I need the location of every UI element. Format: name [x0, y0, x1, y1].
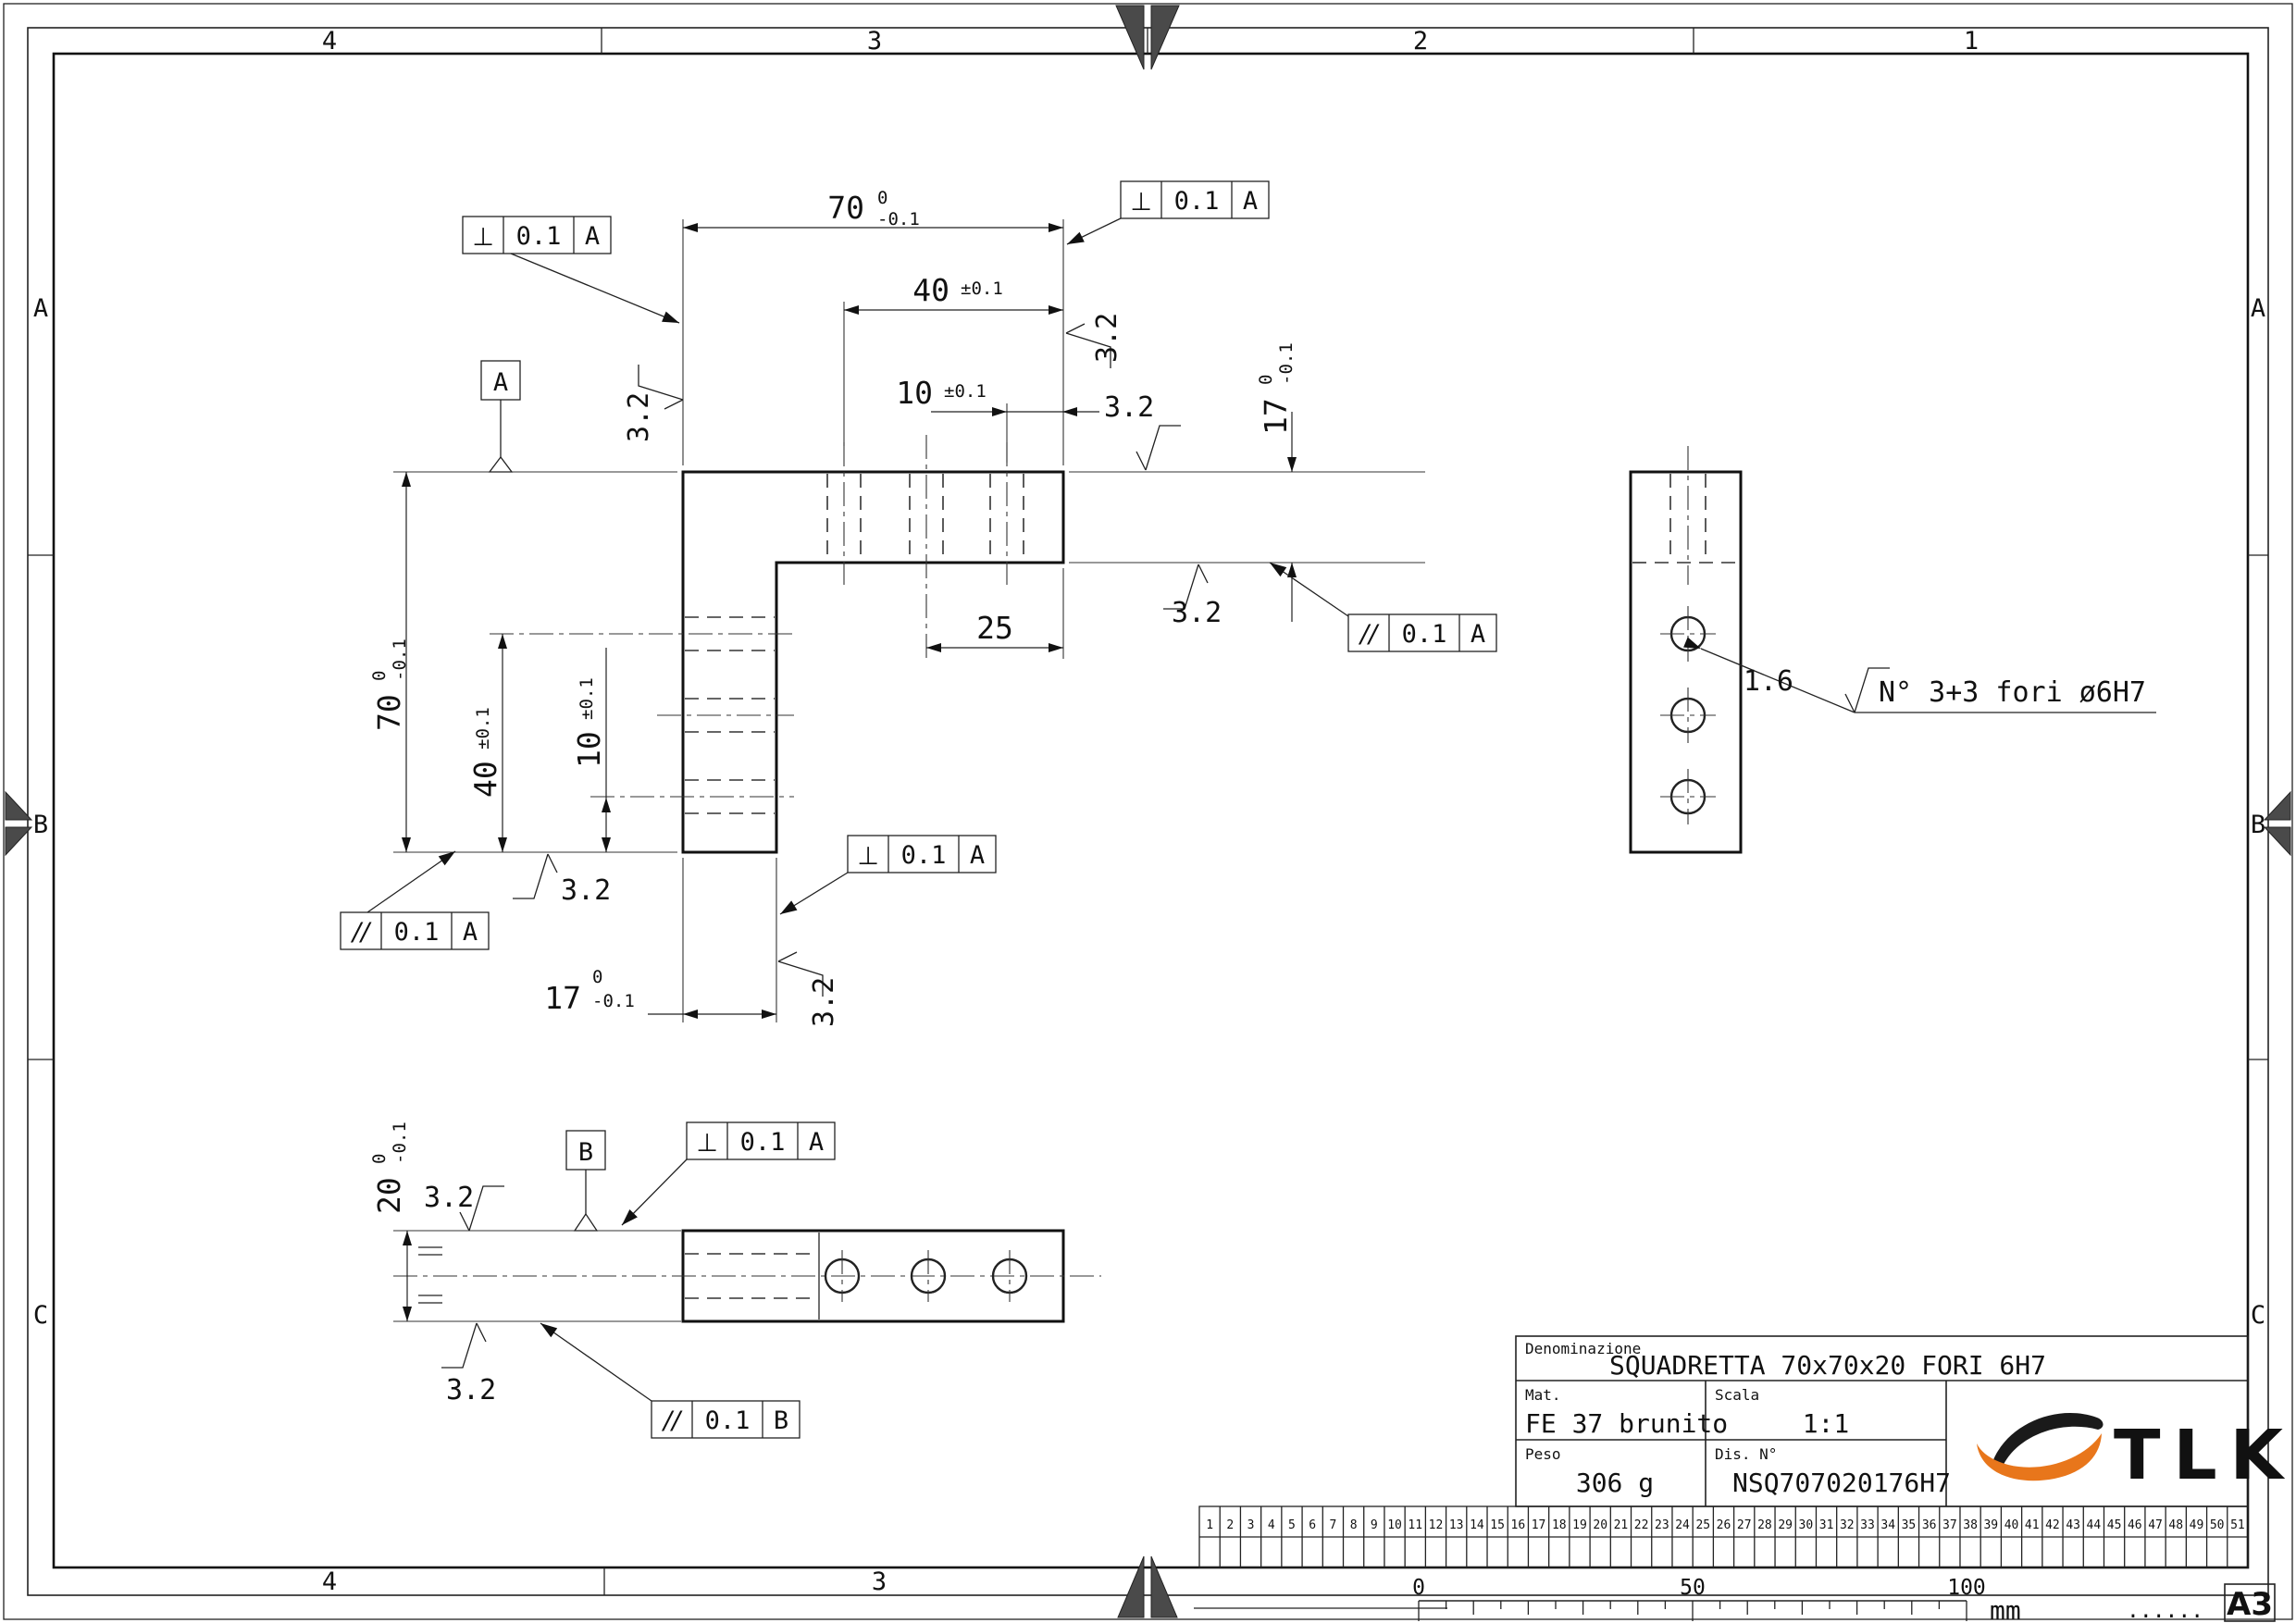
strip-cell-number: 2 [1226, 1518, 1234, 1532]
gdt-datum: A [970, 841, 985, 870]
strip-cell-number: 11 [1408, 1518, 1422, 1532]
strip-cell-number: 10 [1387, 1518, 1402, 1532]
strip-cell-number: 6 [1309, 1518, 1316, 1532]
gdt-datum: A [1243, 187, 1258, 216]
strip-cell-number: 48 [2168, 1518, 2183, 1532]
dim-70-left-upper: 0 [369, 671, 390, 681]
zone-right-b: B [2251, 811, 2265, 839]
strip-cell-number: 17 [1532, 1518, 1546, 1532]
gdt-perp-center: ⊥ 0.1 A [777, 836, 996, 919]
parallel-icon: // [1359, 620, 1380, 649]
dim-40-top-value: 40 [912, 272, 949, 308]
peso-value: 306 g [1576, 1468, 1654, 1498]
dim-17-bottom: 17 0 -0.1 [544, 967, 776, 1019]
strip-cell-number: 14 [1470, 1518, 1484, 1532]
logo-text: TLK [2114, 1416, 2296, 1495]
strip-cell-number: 18 [1552, 1518, 1567, 1532]
gdt-perp-bottom-view: ⊥ 0.1 A [618, 1122, 835, 1229]
hole-note: 1.6 N° 3+3 fori ø6H7 [1683, 638, 2156, 712]
gdt-perp-top-left: ⊥ 0.1 A [463, 217, 681, 328]
side-view-outline [1631, 472, 1741, 852]
dim-20-upper: 0 [369, 1154, 390, 1164]
finish-mark: 3.2 [808, 977, 840, 1027]
strip-cell-number: 50 [2210, 1518, 2225, 1532]
ruler-dots: ...... [2127, 1599, 2203, 1623]
dim-70-left: 70 0 -0.1 [369, 472, 411, 852]
datum-b-label: B [578, 1138, 593, 1167]
trim-mark-bottom [1118, 1556, 1177, 1617]
strip-cell-number: 15 [1490, 1518, 1505, 1532]
zone-top-2: 2 [1413, 27, 1428, 56]
a3-drawing-sheet: 4 3 2 1 4 3 A B C A B C [0, 0, 2296, 1623]
strip-cell-number: 25 [1695, 1518, 1710, 1532]
zone-right-c: C [2251, 1301, 2265, 1330]
ruler-100: 100 [1947, 1576, 1986, 1600]
strip-cell-number: 47 [2148, 1518, 2163, 1532]
finish-mark: 3.2 [424, 1182, 474, 1214]
finish-mark: 3.2 [1091, 313, 1123, 363]
dim-40-left: 40 ±0.1 [467, 634, 507, 852]
dim-70-top-upper: 0 [877, 188, 887, 208]
strip-cell-number: 34 [1880, 1518, 1895, 1532]
zone-bottom-3: 3 [872, 1567, 887, 1596]
gdt-par-mid: // 0.1 A [1267, 558, 1496, 651]
finish-mark: 3.2 [446, 1374, 496, 1406]
dim-10-top-tol: ±0.1 [944, 381, 987, 402]
dim-70-top-value: 70 [827, 190, 864, 226]
strip-cell-number: 33 [1860, 1518, 1875, 1532]
scala-value: 1:1 [1803, 1408, 1850, 1439]
datum-a-flag: A [481, 361, 520, 472]
mat-label: Mat. [1525, 1386, 1561, 1404]
strip-cell-number: 40 [2004, 1518, 2019, 1532]
gdt-datum: A [463, 918, 478, 947]
strip-cell-number: 42 [2045, 1518, 2060, 1532]
strip-cell-number: 19 [1572, 1518, 1587, 1532]
zone-left-c: C [33, 1301, 48, 1330]
surface-finish-marks: 3.2 3.2 3.2 3.2 3.2 3.2 3.2 3.2 [424, 313, 1222, 1406]
dim-10-left: 10 ±0.1 [571, 648, 611, 852]
strip-cell-number: 44 [2087, 1518, 2102, 1532]
strip-cell-number: 23 [1655, 1518, 1669, 1532]
perp-icon: ⊥ [1130, 188, 1152, 217]
finish-mark: 3.2 [1104, 391, 1154, 424]
finish-1_6-holes: 1.6 [1744, 665, 1793, 698]
gdt-datum: A [809, 1128, 824, 1157]
strip-cell-number: 35 [1902, 1518, 1917, 1532]
finish-mark: 3.2 [1172, 597, 1222, 629]
gdt-datum: B [774, 1406, 788, 1435]
strip-cell-number: 49 [2190, 1518, 2204, 1532]
strip-cell-number: 46 [2128, 1518, 2142, 1532]
finish-mark: 3.2 [623, 392, 655, 442]
gdt-frames: ⊥ 0.1 A ⊥ 0.1 A // 0.1 A [341, 181, 1496, 1438]
dim-17-bottom-value: 17 [544, 980, 581, 1016]
strip-cell-number: 32 [1840, 1518, 1855, 1532]
gdt-datum: A [585, 222, 600, 251]
dim-20-lower: -0.1 [390, 1121, 410, 1164]
dis-number-value: NSQ707020176H7 [1732, 1468, 1951, 1498]
strip-cell-number: 5 [1288, 1518, 1296, 1532]
dim-17-right-upper: 0 [1256, 375, 1276, 385]
strip-cell-number: 39 [1983, 1518, 1998, 1532]
title-block: Denominazione SQUADRETTA 70x70x20 FORI 6… [1516, 1336, 2296, 1506]
dim-70-top: 70 0 -0.1 [683, 188, 1063, 232]
gdt-par-bottom-left: // 0.1 A [341, 847, 489, 949]
zone-top-3: 3 [867, 27, 882, 56]
bottom-margin: 0 50 100 mm ...... A3 [1194, 1576, 2275, 1623]
finish-mark: 3.2 [561, 874, 611, 907]
strip-cell-number: 9 [1371, 1518, 1378, 1532]
datum-b-flag: B [566, 1131, 605, 1231]
strip-cell-number: 51 [2230, 1518, 2245, 1532]
ruler-unit: mm [1990, 1595, 2021, 1623]
datum-a-label: A [493, 368, 508, 397]
front-view-outline [683, 472, 1063, 852]
strip-cell-number: 1 [1206, 1518, 1213, 1532]
strip-cell-number: 13 [1449, 1518, 1464, 1532]
strip-cell-number: 37 [1942, 1518, 1957, 1532]
strip-cell-number: 30 [1799, 1518, 1814, 1532]
mm-ruler [1419, 1601, 1967, 1621]
strip-cell-number: 31 [1819, 1518, 1834, 1532]
dim-25: 25 [926, 610, 1063, 652]
parallel-icon: // [662, 1406, 683, 1435]
dim-17-bottom-lower: -0.1 [592, 991, 635, 1011]
zone-top-4: 4 [322, 27, 337, 56]
dim-70-left-value: 70 [371, 694, 407, 731]
strip-cell-number: 36 [1922, 1518, 1937, 1532]
ruler-50: 50 [1680, 1576, 1706, 1600]
strip-cell-number: 41 [2025, 1518, 2040, 1532]
dim-40-top-tol: ±0.1 [961, 279, 1003, 299]
extension-lines-front [393, 219, 1425, 1022]
strip-cell-number: 21 [1614, 1518, 1629, 1532]
strip-cell-number: 28 [1757, 1518, 1772, 1532]
dim-17-right-value: 17 [1258, 398, 1294, 435]
strip-cell-number: 12 [1429, 1518, 1444, 1532]
strip-cell-number: 8 [1350, 1518, 1358, 1532]
ruler-0: 0 [1412, 1576, 1425, 1600]
gdt-perp-top-right: ⊥ 0.1 A [1064, 181, 1269, 249]
strip-cell-number: 3 [1247, 1518, 1255, 1532]
strip-cell-number: 26 [1717, 1518, 1731, 1532]
dim-40-left-value: 40 [467, 761, 503, 798]
gdt-tol: 0.1 [901, 841, 947, 870]
dim-70-top-lower: -0.1 [877, 209, 920, 229]
gdt-par-datum-b: // 0.1 B [538, 1319, 800, 1438]
dim-10-top-value: 10 [896, 375, 933, 411]
strip-cell-number: 38 [1963, 1518, 1978, 1532]
dim-70-left-lower: -0.1 [390, 638, 410, 681]
dim-20: 20 0 -0.1 [369, 1121, 412, 1321]
side-view: 1.6 N° 3+3 fori ø6H7 [1631, 446, 2156, 852]
dim-17-bottom-upper: 0 [592, 967, 602, 987]
gdt-tol: 0.1 [394, 918, 440, 947]
gdt-tol: 0.1 [516, 222, 562, 251]
zone-right-a: A [2251, 294, 2265, 323]
gdt-datum: A [1471, 620, 1485, 649]
strip-cell-number: 16 [1511, 1518, 1526, 1532]
dim-17-right-lower: -0.1 [1276, 342, 1297, 385]
reference-strip: 1234567891011121314151617181920212223242… [1199, 1506, 2248, 1567]
scala-label: Scala [1715, 1386, 1759, 1404]
front-view: 70 0 -0.1 40 ±0.1 10 ±0.1 25 17 [369, 188, 1425, 1022]
gdt-tol: 0.1 [1174, 187, 1220, 216]
gdt-tol: 0.1 [1402, 620, 1447, 649]
perp-icon: ⊥ [472, 223, 494, 252]
strip-cell-number: 7 [1329, 1518, 1336, 1532]
strip-cell-number: 24 [1675, 1518, 1690, 1532]
tlk-logo: TLK [1977, 1413, 2296, 1495]
strip-cell-number: 29 [1778, 1518, 1793, 1532]
zone-left-a: A [33, 294, 48, 323]
dim-40-left-tol: ±0.1 [473, 707, 493, 750]
perp-icon: ⊥ [857, 842, 879, 871]
strip-cell-number: 43 [2066, 1518, 2080, 1532]
zone-left-b: B [33, 811, 48, 839]
strip-cell-number: 4 [1268, 1518, 1275, 1532]
dim-17-right: 17 0 -0.1 [1256, 342, 1297, 622]
sheet-format: A3 [2227, 1586, 2273, 1623]
gdt-tol: 0.1 [705, 1406, 751, 1435]
dis-number-label: Dis. N° [1715, 1445, 1777, 1463]
zone-bottom-4: 4 [322, 1567, 337, 1596]
drawing-canvas: 4 3 2 1 4 3 A B C A B C [0, 0, 2296, 1623]
strip-cell-number: 20 [1593, 1518, 1607, 1532]
parallel-icon: // [351, 918, 372, 947]
denominazione-value: SQUADRETTA 70x70x20 FORI 6H7 [1609, 1350, 2046, 1381]
hidden-holes-top-leg [827, 474, 1024, 561]
gdt-tol: 0.1 [740, 1128, 786, 1157]
symmetry-marks [418, 1247, 442, 1303]
dim-40-top: 40 ±0.1 [844, 272, 1063, 315]
centerlines-front [490, 435, 1007, 797]
dim-10-left-value: 10 [571, 731, 607, 768]
hole-note-text: N° 3+3 fori ø6H7 [1879, 676, 2146, 709]
dim-10-top: 10 ±0.1 [896, 375, 1099, 416]
dim-25-value: 25 [976, 610, 1013, 646]
dim-20-value: 20 [371, 1177, 407, 1214]
zone-top-1: 1 [1964, 27, 1979, 56]
bottom-view: 20 0 -0.1 [369, 1121, 1101, 1321]
strip-cell-number: 27 [1737, 1518, 1752, 1532]
strip-cell-number: 22 [1634, 1518, 1649, 1532]
mat-value: FE 37 brunito [1525, 1408, 1728, 1439]
perp-icon: ⊥ [696, 1129, 718, 1158]
dim-10-left-tol: ±0.1 [577, 677, 597, 720]
strip-cell-number: 45 [2107, 1518, 2122, 1532]
peso-label: Peso [1525, 1445, 1561, 1463]
